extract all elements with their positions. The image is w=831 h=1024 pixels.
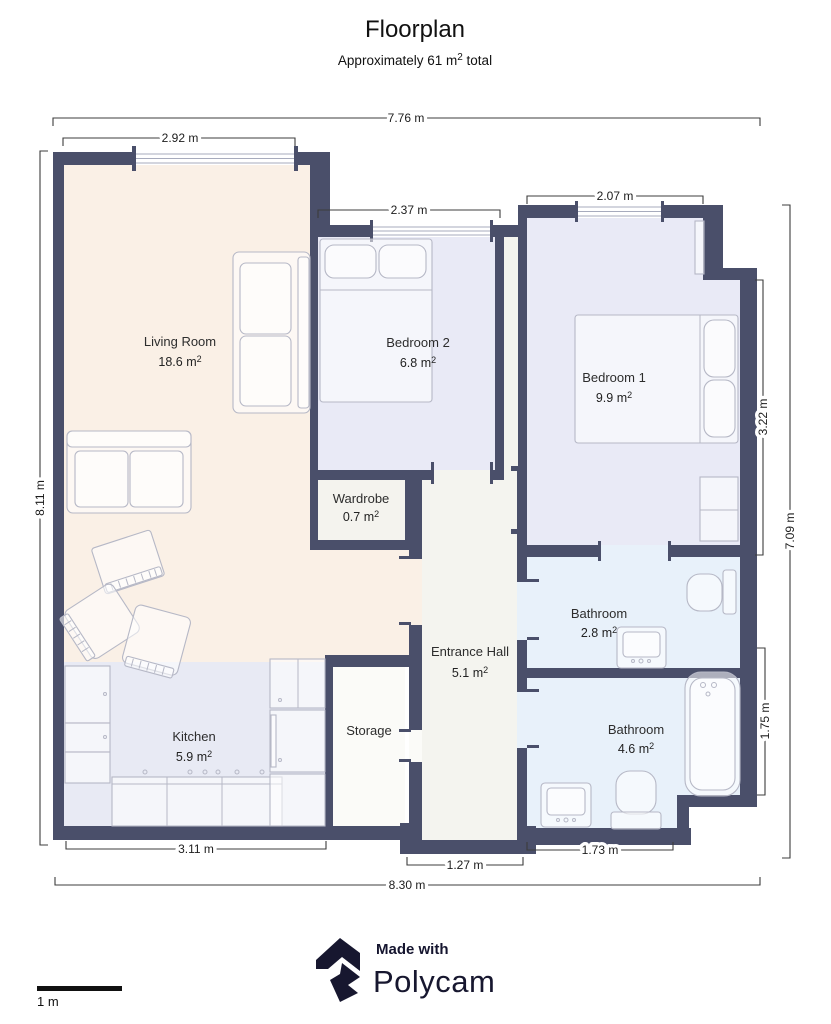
- svg-text:Bathroom: Bathroom: [608, 722, 664, 737]
- svg-text:2.92 m: 2.92 m: [162, 131, 199, 145]
- room-hall-floor: [422, 480, 517, 840]
- svg-text:2.37 m: 2.37 m: [391, 203, 428, 217]
- svg-text:7.76 m: 7.76 m: [388, 111, 425, 125]
- svg-text:Kitchen: Kitchen: [172, 729, 215, 744]
- dim-right-bath: 1.75 m: [757, 648, 772, 795]
- svg-text:Bedroom 1: Bedroom 1: [582, 370, 646, 385]
- dresser-icon: [695, 221, 704, 274]
- toilet-icon: [687, 570, 736, 614]
- svg-text:18.6 m2: 18.6 m2: [158, 354, 201, 369]
- dim-top-overall: 7.76 m: [53, 111, 760, 126]
- svg-text:2.07 m: 2.07 m: [597, 189, 634, 203]
- polycam-logo-icon: [316, 938, 360, 1002]
- page-title: Floorplan: [365, 16, 465, 43]
- dim-bottom-hall: 1.27 m: [407, 857, 523, 872]
- window-bedroom1-icon: [578, 205, 661, 218]
- svg-text:Bedroom 2: Bedroom 2: [386, 335, 450, 350]
- svg-text:4.6 m2: 4.6 m2: [618, 741, 654, 756]
- svg-text:Wardrobe: Wardrobe: [333, 491, 390, 506]
- scale-bar: 1 m: [37, 986, 122, 1009]
- svg-text:Storage: Storage: [346, 723, 392, 738]
- dim-top-living-window: 2.92 m: [63, 131, 295, 146]
- svg-text:1.73 m: 1.73 m: [582, 843, 619, 857]
- dim-left-overall: 8.11 m: [33, 151, 48, 845]
- sofa-small-icon: [67, 431, 191, 513]
- svg-text:8.11 m: 8.11 m: [33, 480, 47, 516]
- dim-right-bedroom1: 3.22 m: [755, 280, 770, 555]
- svg-text:1.75 m: 1.75 m: [758, 703, 772, 740]
- page-header: Floorplan Approximately 61 m2 total: [338, 16, 492, 68]
- dim-right-overall: 7.09 m: [782, 205, 797, 858]
- room-storage-floor: [333, 667, 405, 826]
- svg-text:2.8 m2: 2.8 m2: [581, 625, 617, 640]
- sink-icon: [617, 627, 666, 668]
- floorplan-canvas: Floorplan Approximately 61 m2 total: [0, 0, 831, 1024]
- closet-icon: [700, 477, 738, 541]
- floorplan-page: Floorplan Approximately 61 m2 total: [0, 0, 831, 1024]
- svg-text:5.9 m2: 5.9 m2: [176, 749, 212, 764]
- svg-text:3.22 m: 3.22 m: [756, 399, 770, 436]
- svg-text:Entrance Hall: Entrance Hall: [431, 644, 509, 659]
- svg-text:5.1 m2: 5.1 m2: [452, 665, 488, 680]
- footer-branding: Made with Polycam: [316, 938, 495, 1002]
- svg-text:Bathroom: Bathroom: [571, 606, 627, 621]
- dim-top-bedroom2: 2.37 m: [318, 203, 500, 218]
- svg-text:1.27 m: 1.27 m: [447, 858, 484, 872]
- page-subtitle: Approximately 61 m2 total: [338, 52, 492, 68]
- svg-text:Living Room: Living Room: [144, 334, 216, 349]
- window-bedroom2-icon: [373, 225, 490, 237]
- scale-bar-label: 1 m: [37, 994, 59, 1009]
- sink-icon: [541, 783, 591, 827]
- svg-text:6.8 m2: 6.8 m2: [400, 355, 436, 370]
- polycam-wordmark: Polycam: [373, 964, 495, 999]
- svg-text:8.30 m: 8.30 m: [389, 878, 426, 892]
- svg-text:0.7 m2: 0.7 m2: [343, 509, 379, 524]
- bathtub-icon: [685, 672, 740, 796]
- toilet-icon: [611, 771, 661, 829]
- dim-bottom-kitchen: 3.11 m: [66, 841, 326, 856]
- bed-double-icon: [320, 239, 432, 402]
- dim-top-bedroom1: 2.07 m: [527, 189, 703, 204]
- dim-bottom-overall: 8.30 m: [55, 877, 760, 892]
- made-with-label: Made with: [376, 941, 449, 958]
- room-label-storage: Storage: [346, 723, 392, 738]
- window-living-icon: [136, 152, 294, 165]
- svg-text:7.09 m: 7.09 m: [783, 513, 797, 550]
- svg-text:3.11 m: 3.11 m: [178, 842, 214, 856]
- svg-text:9.9 m2: 9.9 m2: [596, 390, 632, 405]
- scale-bar-line: [37, 986, 122, 991]
- sofa-large-icon: [233, 252, 310, 413]
